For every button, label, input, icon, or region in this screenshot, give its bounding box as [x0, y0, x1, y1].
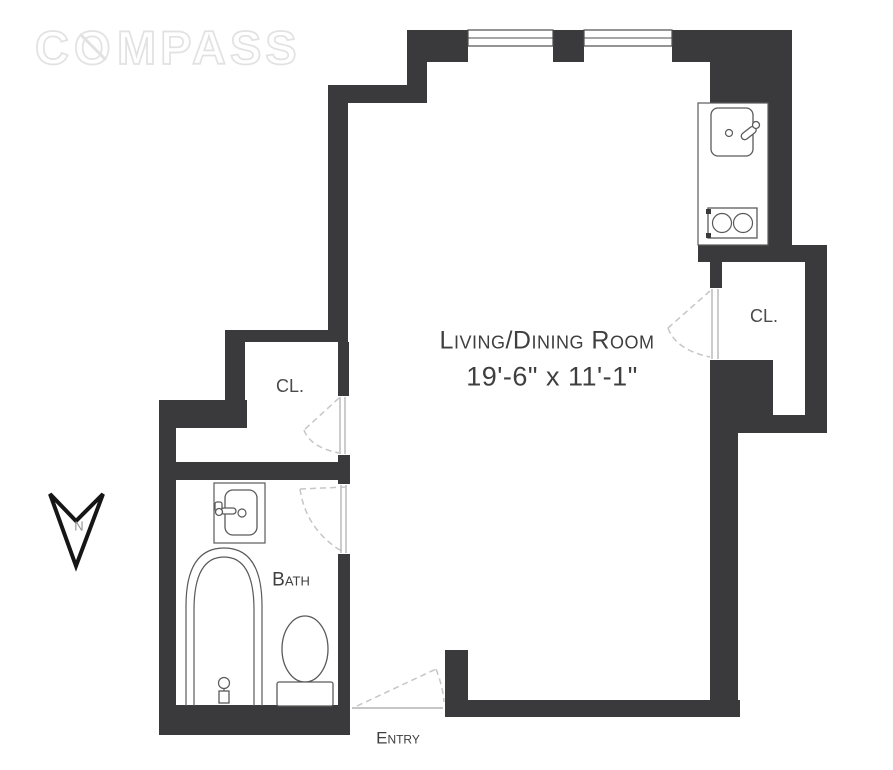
stove-icon: [706, 208, 757, 238]
room-label-closet-left: CL.: [276, 377, 304, 395]
bath-sink-icon: [214, 483, 265, 543]
floorplan-drawing: [0, 0, 893, 770]
toilet-icon: [277, 616, 333, 706]
kitchen-sink-icon: [711, 108, 760, 156]
north-label: N: [74, 520, 83, 533]
door-swing-entry: [352, 669, 444, 708]
room-dimensions-living-dining: 19'-6" x 11'-1": [466, 364, 638, 391]
floorplan-page: C O MPASS: [0, 0, 893, 770]
bathroom-area: [186, 483, 333, 706]
door-swing-closet-right: [668, 289, 718, 359]
kitchen-area: [698, 103, 768, 245]
room-label-living-dining: Living/Dining Room: [440, 329, 655, 354]
door-swing-bath: [300, 485, 346, 553]
door-swing-closet-left: [304, 397, 345, 454]
bathtub-icon: [186, 548, 262, 706]
room-label-entry: Entry: [376, 730, 420, 747]
room-label-bath: Bath: [272, 571, 310, 590]
room-label-closet-right: CL.: [750, 307, 778, 325]
